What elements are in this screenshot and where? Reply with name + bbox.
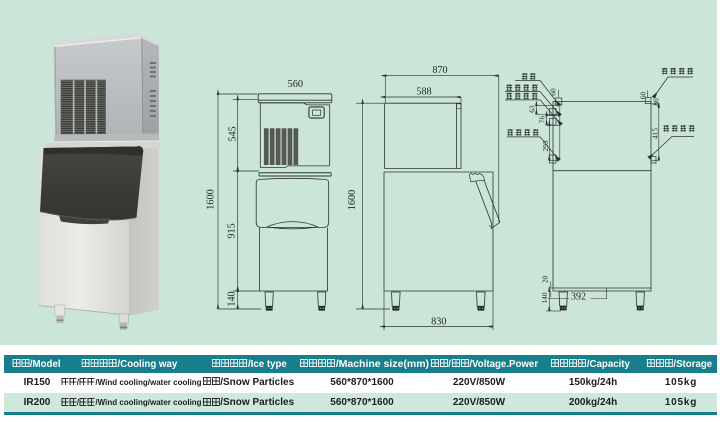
svg-text:915: 915 bbox=[227, 223, 238, 238]
svg-text:293: 293 bbox=[541, 140, 550, 151]
svg-text:60: 60 bbox=[639, 92, 648, 100]
svg-text:545: 545 bbox=[228, 126, 239, 141]
svg-text:76: 76 bbox=[538, 116, 547, 124]
svg-text:1600: 1600 bbox=[206, 189, 217, 209]
svg-text:86: 86 bbox=[652, 98, 661, 106]
svg-text:415: 415 bbox=[651, 128, 660, 139]
svg-text:870: 870 bbox=[432, 65, 447, 76]
svg-text:392: 392 bbox=[571, 292, 586, 303]
svg-text:140: 140 bbox=[540, 292, 549, 303]
svg-text:560: 560 bbox=[288, 79, 303, 90]
svg-text:63: 63 bbox=[528, 105, 537, 113]
svg-text:588: 588 bbox=[416, 87, 431, 98]
svg-text:830: 830 bbox=[431, 317, 446, 328]
svg-text:1600: 1600 bbox=[347, 190, 358, 210]
svg-text:20: 20 bbox=[541, 276, 550, 284]
svg-text:140: 140 bbox=[227, 291, 238, 306]
svg-text:60: 60 bbox=[549, 88, 558, 96]
